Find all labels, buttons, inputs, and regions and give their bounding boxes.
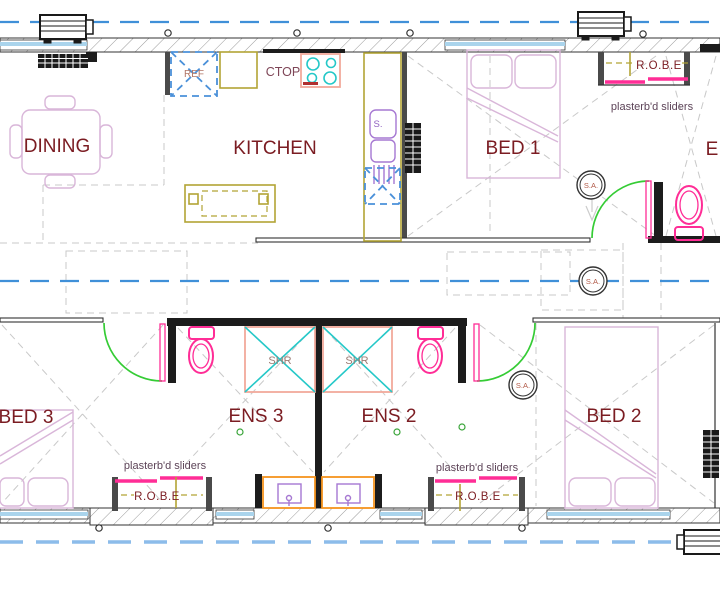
ctop-label: CTOP: [266, 65, 301, 79]
robe-label: R.O.B.E: [636, 60, 682, 72]
sliders-note: plasterb'd sliders: [611, 101, 694, 113]
smoke-alarm-bed1: S.A.: [577, 171, 605, 199]
wall-vent-bed1: [405, 123, 421, 173]
smoke-alarm-label: S.A.: [516, 381, 530, 390]
sink-label: S.: [374, 119, 383, 130]
ensuite-divider-wall: [315, 326, 322, 508]
smoke-alarm-bed2: S.A.: [509, 371, 537, 399]
ac-unit-top-right: [578, 12, 631, 40]
ac-unit-top-left: [40, 15, 93, 43]
shr-label: SHR: [345, 355, 368, 367]
ens2-vanity-wall: [375, 474, 382, 508]
robe-label: R.O.B.E: [134, 491, 180, 503]
ens3-vanity-wall: [255, 474, 262, 508]
bed2-top-wall: [533, 318, 720, 322]
robe-label: R.O.B.E: [455, 491, 501, 503]
wall-vent-top-left: [38, 54, 88, 68]
ac-unit-bottom-right: [677, 530, 720, 554]
sliders-note: plasterb'd sliders: [436, 462, 519, 474]
bed1-bottom-wall: [256, 238, 590, 242]
smoke-alarm-label: S.A.: [584, 181, 598, 190]
bed1-label: BED 1: [486, 138, 541, 159]
bed3-top-wall: [0, 318, 103, 322]
smoke-alarm-hall: S.A.: [579, 267, 607, 295]
floor-plan-drawing: S.A. S.A. S.A. DINING KITCHEN BED 1 BED …: [0, 0, 720, 598]
sliders-note: plasterb'd sliders: [124, 460, 207, 472]
bed3-label: BED 3: [0, 407, 53, 428]
ref-label: REF: [184, 69, 204, 80]
shr-label: SHR: [268, 355, 291, 367]
ens3-left-wall: [168, 326, 176, 383]
floor-plan-canvas: S.A. S.A. S.A. DINING KITCHEN BED 1 BED …: [0, 0, 720, 598]
dining-label: DINING: [24, 136, 91, 157]
ens3-label: ENS 3: [229, 406, 284, 427]
ens-partial-label: E: [706, 139, 719, 160]
smoke-alarm-label: S.A.: [586, 277, 600, 286]
wall-vent-bed2: [703, 430, 719, 478]
bed2-label: BED 2: [587, 406, 642, 427]
ens2-label: ENS 2: [362, 406, 417, 427]
kitchen-nib-wall: [165, 52, 170, 95]
ensuite-top-wall: [167, 318, 467, 326]
kitchen-label: KITCHEN: [233, 138, 316, 159]
ens2-right-wall: [458, 326, 466, 383]
wc-side-wall: [654, 182, 663, 238]
